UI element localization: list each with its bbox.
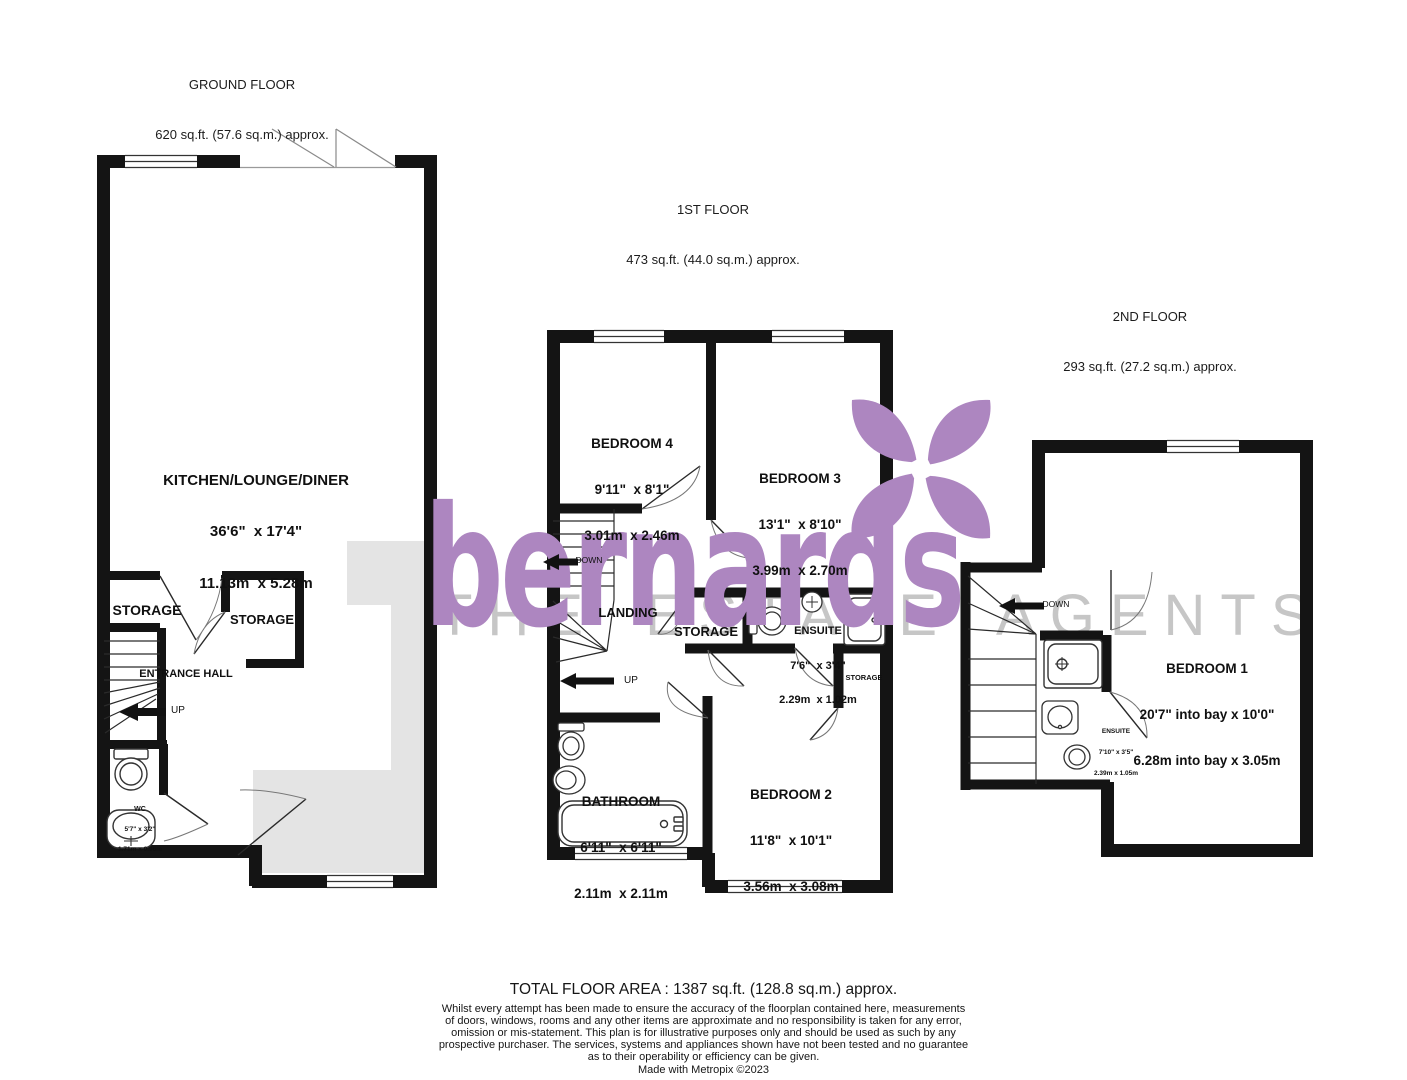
- floor-area: 293 sq.ft. (27.2 sq.m.) approx.: [1063, 359, 1236, 376]
- down-arrow-icon: [999, 598, 1044, 614]
- metropix-credit: Made with Metropix ©2023: [0, 1064, 1407, 1076]
- floor-area: 620 sq.ft. (57.6 sq.m.) approx.: [155, 127, 328, 144]
- stair-label-down: DOWN: [1043, 600, 1070, 610]
- room-label-storage-left: STORAGE: [113, 603, 182, 619]
- disclaimer-line: prospective purchaser. The services, sys…: [0, 1039, 1407, 1051]
- stair-label-up: UP: [171, 705, 185, 716]
- stair-label-up: UP: [624, 675, 638, 686]
- second-floor-header: 2ND FLOOR 293 sq.ft. (27.2 sq.m.) approx…: [1063, 275, 1236, 410]
- room-label-kitchen: KITCHEN/LOUNGE/DINER 36'6" x 17'4" 11.13…: [163, 438, 349, 626]
- disclaimer-line: omission or mis-statement. This plan is …: [0, 1027, 1407, 1039]
- labels-layer: GROUND FLOOR 620 sq.ft. (57.6 sq.m.) app…: [0, 0, 1407, 1080]
- room-label-bedroom4: BEDROOM 4 9'11" x 8'1" 3.01m x 2.46m: [584, 405, 679, 574]
- room-label-bedroom2: BEDROOM 2 11'8" x 10'1" 3.56m x 3.08m: [743, 756, 838, 925]
- floor-title: GROUND FLOOR: [155, 77, 328, 94]
- room-label-ensuite: ENSUITE 7'6" x 3'4" 2.29m x 1.02m: [779, 603, 857, 730]
- room-label-landing: LANDING: [598, 606, 657, 621]
- room-label-ensuite2: ENSUITE 7'10" x 3'5" 2.39m x 1.05m: [1094, 714, 1138, 791]
- room-label-storage-right: STORAGE: [230, 613, 294, 628]
- room-label-entrance-hall: ENTRANCE HALL: [139, 668, 233, 681]
- stair-label-down: DOWN: [576, 556, 603, 566]
- room-label-storage-small: STORAGE: [846, 674, 883, 683]
- up-arrow-icon: [560, 673, 614, 689]
- floor-title: 2ND FLOOR: [1063, 309, 1236, 326]
- room-label-wc: WC 5'7" x 3'2" 1.71m x 0.96m: [118, 792, 162, 867]
- up-arrow-icon: [119, 703, 166, 721]
- disclaimer-line: Whilst every attempt has been made to en…: [0, 1003, 1407, 1015]
- room-label-bedroom1: BEDROOM 1 20'7" into bay x 10'0" 6.28m i…: [1133, 630, 1280, 799]
- disclaimer-line: as to their operability or efficiency ca…: [0, 1051, 1407, 1063]
- first-floor-header: 1ST FLOOR 473 sq.ft. (44.0 sq.m.) approx…: [626, 168, 799, 303]
- ground-floor-header: GROUND FLOOR 620 sq.ft. (57.6 sq.m.) app…: [155, 43, 328, 178]
- total-floor-area: TOTAL FLOOR AREA : 1387 sq.ft. (128.8 sq…: [0, 981, 1407, 999]
- floor-title: 1ST FLOOR: [626, 202, 799, 219]
- down-arrow-icon: [543, 554, 578, 570]
- disclaimer-line: of doors, windows, rooms and any other i…: [0, 1015, 1407, 1027]
- room-label-bathroom: BATHROOM 6'11" x 6'11" 2.11m x 2.11m: [574, 763, 668, 932]
- floor-area: 473 sq.ft. (44.0 sq.m.) approx.: [626, 252, 799, 269]
- floorplan-page: { "watermark": { "brand": "bernards", "t…: [0, 0, 1407, 1080]
- room-label-storage: STORAGE: [674, 625, 738, 640]
- room-label-bedroom3: BEDROOM 3 13'1" x 8'10" 3.99m x 2.70m: [752, 440, 847, 609]
